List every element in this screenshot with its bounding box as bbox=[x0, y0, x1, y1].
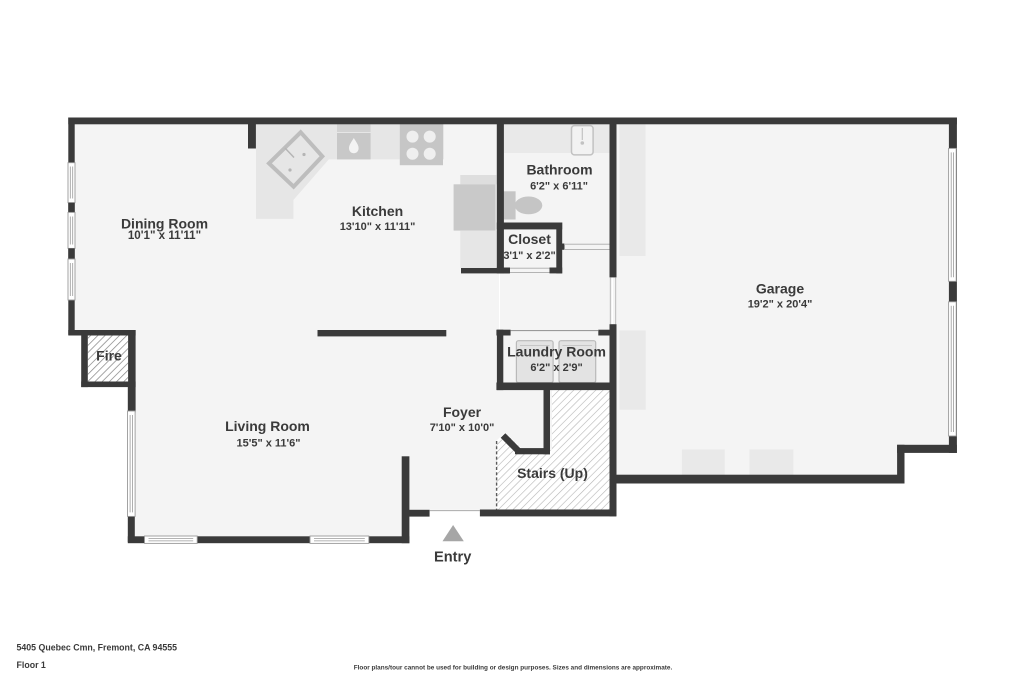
svg-text:Entry: Entry bbox=[434, 549, 472, 565]
svg-text:Closet: Closet bbox=[508, 231, 551, 247]
svg-text:Floor 1: Floor 1 bbox=[17, 660, 46, 670]
svg-text:Bathroom: Bathroom bbox=[526, 161, 592, 177]
svg-text:13'10" x 11'11": 13'10" x 11'11" bbox=[340, 221, 416, 233]
svg-text:19'2" x 20'4": 19'2" x 20'4" bbox=[748, 299, 813, 311]
svg-text:Laundry Room: Laundry Room bbox=[507, 343, 606, 359]
svg-text:5405 Quebec Cmn, Fremont, CA 9: 5405 Quebec Cmn, Fremont, CA 94555 bbox=[17, 643, 178, 653]
svg-text:Stairs (Up): Stairs (Up) bbox=[517, 465, 588, 481]
svg-text:Living Room: Living Room bbox=[225, 418, 310, 434]
svg-text:15'5" x 11'6": 15'5" x 11'6" bbox=[237, 438, 301, 450]
svg-text:3'1" x 2'2": 3'1" x 2'2" bbox=[503, 250, 555, 262]
svg-text:7'10" x 10'0": 7'10" x 10'0" bbox=[430, 422, 495, 434]
svg-text:Floor plans/tour cannot be use: Floor plans/tour cannot be used for buil… bbox=[354, 665, 673, 672]
svg-text:10'1" x 11'11": 10'1" x 11'11" bbox=[128, 229, 201, 242]
svg-text:Fire: Fire bbox=[96, 347, 122, 363]
svg-text:6'2" x 2'9": 6'2" x 2'9" bbox=[530, 362, 582, 374]
svg-text:Garage: Garage bbox=[756, 280, 804, 296]
svg-text:Foyer: Foyer bbox=[443, 404, 482, 420]
svg-text:Kitchen: Kitchen bbox=[352, 203, 403, 219]
svg-text:6'2" x 6'11": 6'2" x 6'11" bbox=[530, 181, 588, 193]
